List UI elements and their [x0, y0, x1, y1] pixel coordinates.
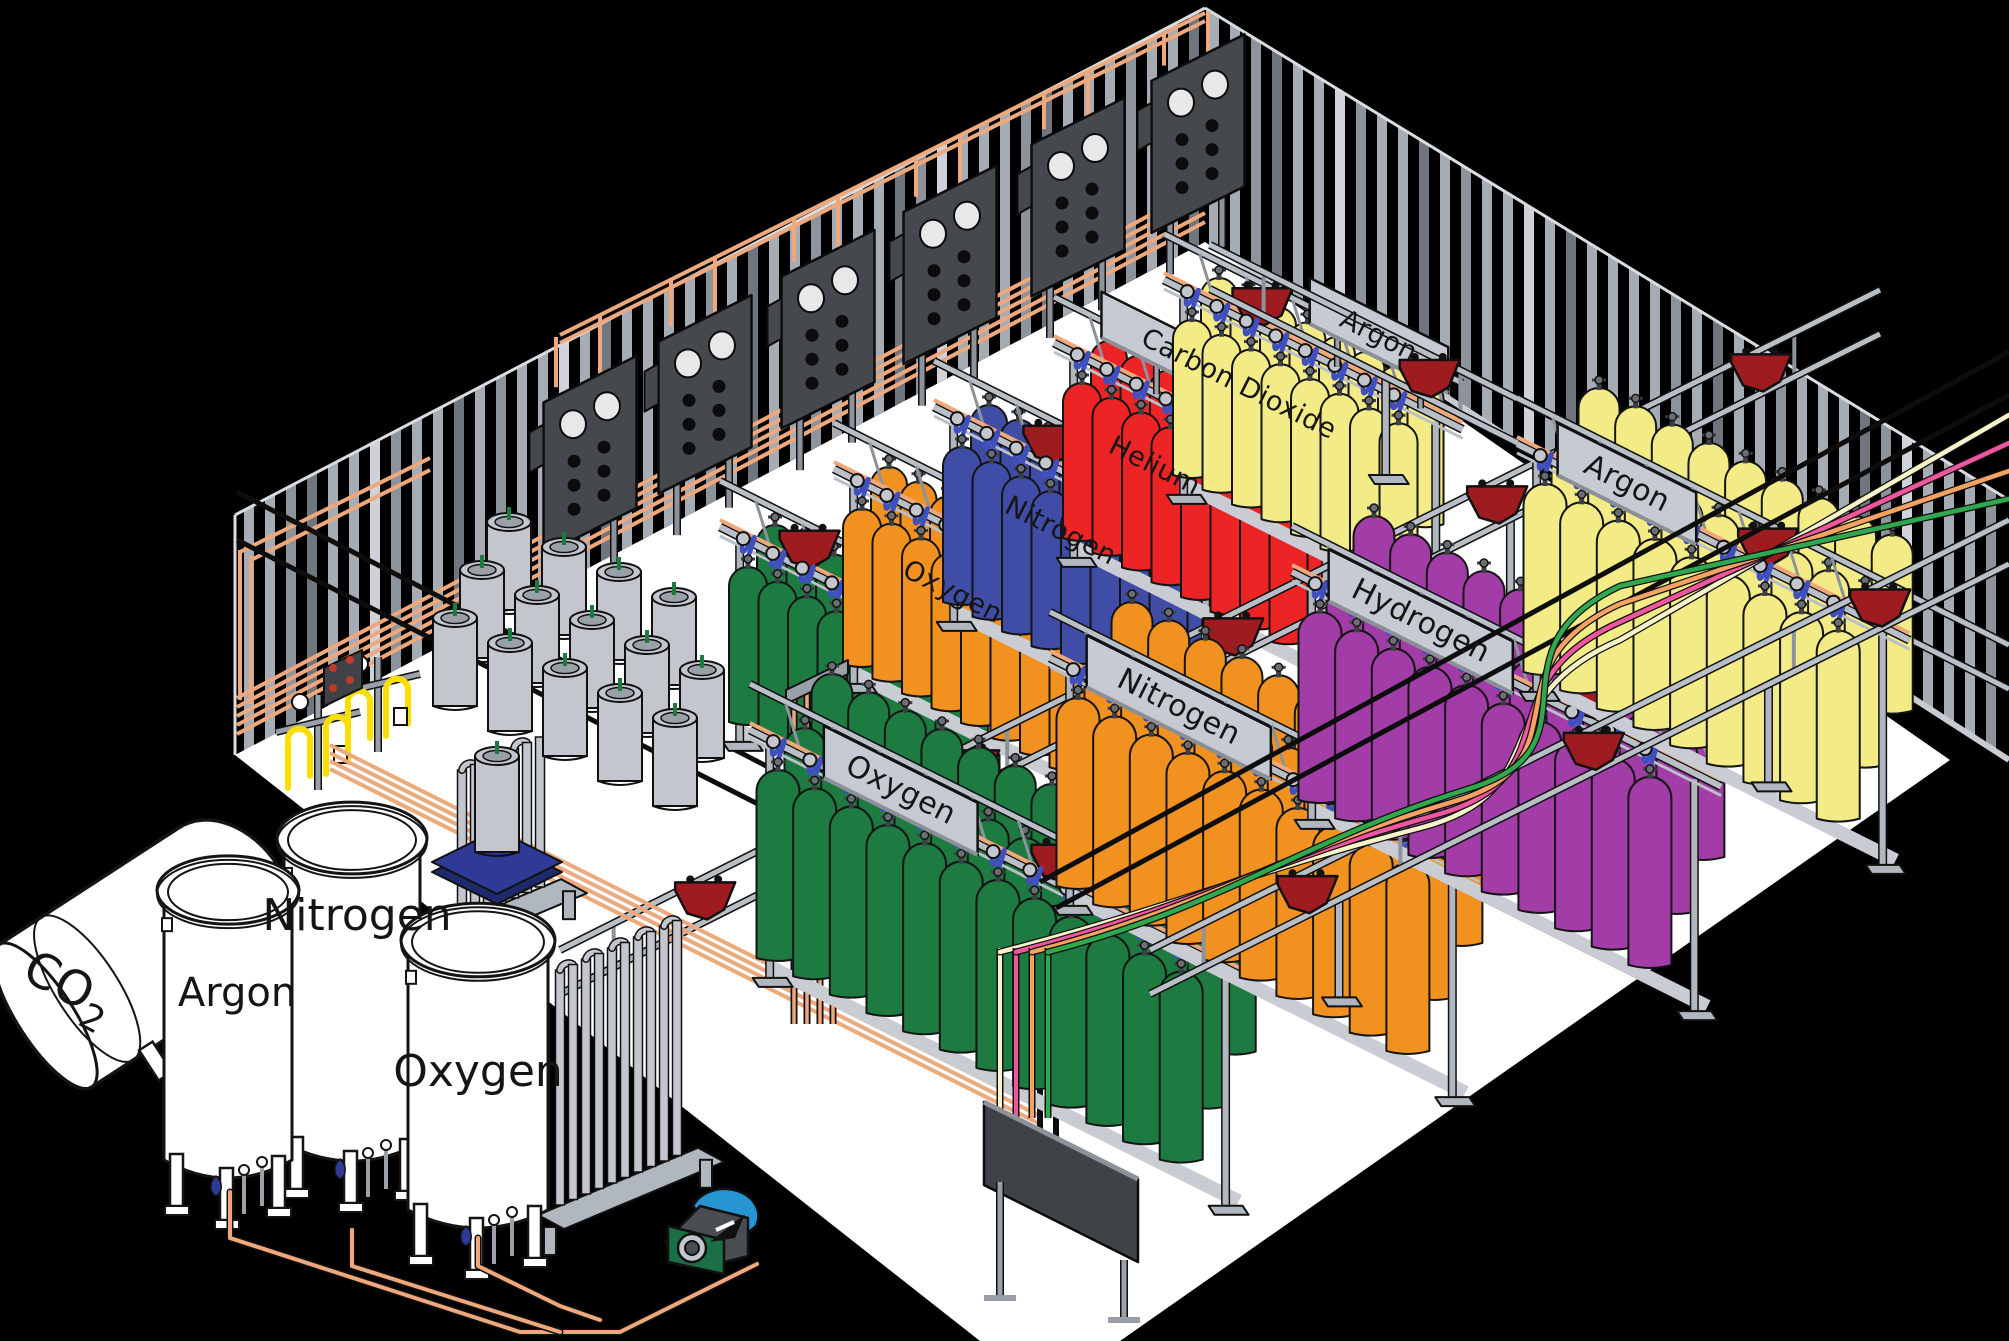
- tank-label-argon: Argon: [178, 970, 296, 1016]
- gas-filling-plant-illustration: Oxygen Nitrogen Helium Carbon Dioxide Ar…: [0, 0, 2009, 1341]
- tank-label-oxygen: Oxygen: [393, 1046, 563, 1097]
- tank-label-nitrogen: Nitrogen: [262, 890, 451, 941]
- scene-svg: Oxygen Nitrogen Helium Carbon Dioxide Ar…: [0, 0, 2009, 1341]
